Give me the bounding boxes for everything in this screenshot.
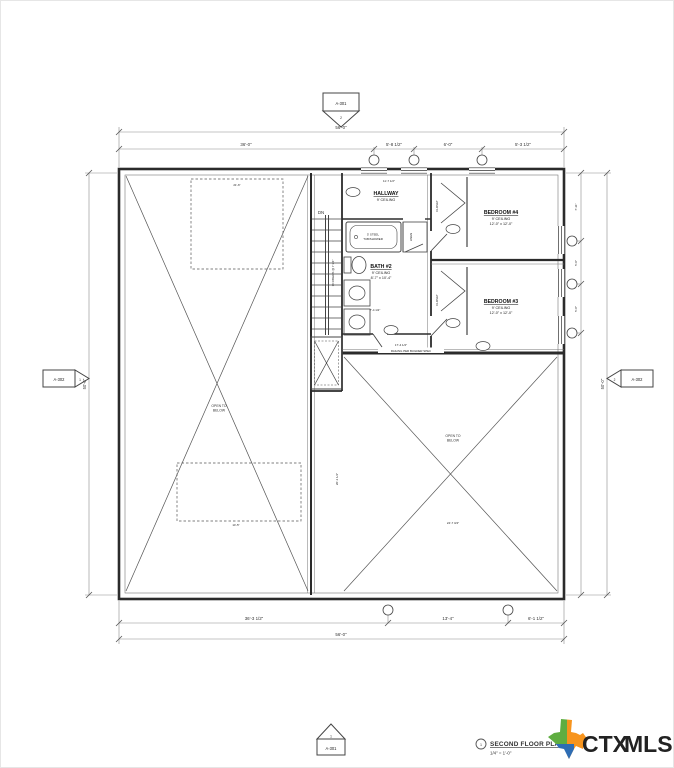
dim-interior: 11'-7 1/2"	[383, 179, 395, 183]
plan-scale: 1/4" = 1'-0"	[490, 751, 512, 756]
room-label-bath2: BATH #2	[370, 264, 391, 270]
room-ceiling-bedroom3: 9' CEILING	[492, 306, 511, 310]
window-tag	[369, 155, 577, 615]
room-size-bedroom3: 12'-0" x 12'-0"	[490, 311, 513, 315]
dim-bottom-seg: 6'-1 1/2"	[528, 616, 545, 621]
dim-interior: 14'-5"	[232, 523, 239, 527]
dashed-feature-below	[177, 463, 301, 521]
ctxmls-logo: CTX MLS	[548, 719, 673, 759]
title-block: 1 SECOND FLOOR PLAN 1/4" = 1'-0"	[476, 739, 564, 756]
dim-top-seg: 5'-8 1/2"	[386, 142, 403, 147]
door-tag	[346, 188, 490, 351]
dim-top-overall: 56'-0"	[335, 125, 347, 130]
marker-left-num: 1	[79, 378, 81, 382]
room-label-bedroom3: BEDROOM #3	[484, 299, 518, 305]
vanity-sink-icon	[344, 280, 370, 306]
marker-bottom-sheet: A-301	[326, 746, 338, 751]
room-label-hallway: HALLWAY	[374, 191, 399, 197]
room-size-bath2: 8'-7" x 10'-4"	[371, 276, 392, 280]
open-below-left: BELOW	[213, 409, 226, 413]
dim-left-overall: 50'-0"	[82, 378, 87, 389]
room-ceiling-hallway: 9' CEILING	[377, 198, 396, 202]
railing-note: RAILING PER BUILDER SPEC	[391, 349, 431, 353]
room-ceiling-bath2: 9' CEILING	[372, 271, 391, 275]
dim-interior: 7'-4 1/2"	[370, 308, 381, 312]
floor-plan-drawing: 56'-0" 36'-0" 5'-8 1/2" 6'-0" 5'-3 1/2" …	[1, 1, 674, 768]
marker-right-num: 2	[614, 378, 616, 382]
vanity-sink-icon	[344, 309, 370, 335]
dim-interior: 21'-6"	[233, 183, 240, 187]
room-tag	[346, 188, 360, 197]
dimension-lines	[85, 127, 611, 644]
dim-interior: 24'-7 3/4"	[447, 521, 459, 525]
dim-right-seg: 5'-0"	[574, 260, 578, 266]
tub-label: TUB/SHOWER	[363, 237, 383, 241]
dim-right-seg: 5'-8"	[574, 306, 578, 312]
dim-right-overall: 50'-0"	[600, 378, 605, 389]
open-below-right: BELOW	[447, 439, 460, 443]
dim-right-seg: 7'-11"	[574, 203, 578, 210]
linen-label: LINEN	[409, 233, 413, 242]
room-size-bedroom4: 12'-0" x 12'-0"	[490, 222, 513, 226]
logo-ctx-text: CTX	[582, 731, 629, 757]
stairs	[311, 215, 342, 389]
marker-top-num: 2	[340, 116, 342, 120]
tub-label: 5' STEEL	[367, 233, 380, 237]
dim-top-seg: 36'-0"	[240, 142, 252, 147]
dim-top-seg: 5'-3 1/2"	[515, 142, 532, 147]
windows	[361, 155, 577, 615]
stairs-dn-label: DN	[318, 210, 324, 215]
detail-number: 1	[480, 743, 482, 747]
room-ceiling-bedroom4: 9' CEILING	[492, 217, 511, 221]
open-below-right: OPEN TO	[445, 434, 460, 438]
tub-drain-icon	[354, 235, 357, 238]
logo-mls-text: MLS	[624, 731, 673, 757]
dim-bottom-overall: 56'-0"	[335, 632, 347, 637]
stairs-risers-label: 16 RISERS @ 7 3/4"	[331, 260, 335, 287]
marker-left-sheet: A-302	[54, 377, 66, 382]
dim-interior: 20'-1 1/2"	[335, 473, 339, 485]
marker-top-sheet: A-301	[336, 101, 348, 106]
marker-right-sheet: A-302	[632, 377, 644, 382]
closet-label: CLOSET	[435, 200, 439, 212]
labels: 56'-0" 36'-0" 5'-8 1/2" 6'-0" 5'-3 1/2" …	[54, 101, 644, 751]
marker-bottom-num: 1	[330, 735, 332, 739]
toilet-icon	[344, 257, 351, 273]
room-label-bedroom4: BEDROOM #4	[484, 210, 518, 216]
plan-title: SECOND FLOOR PLAN	[490, 741, 564, 748]
drawing-sheet: 56'-0" 36'-0" 5'-8 1/2" 6'-0" 5'-3 1/2" …	[0, 0, 674, 768]
dashed-feature-below	[191, 179, 283, 269]
dim-interior: 17'-4 1/2"	[395, 343, 407, 347]
open-below-left: OPEN TO	[211, 404, 226, 408]
dim-bottom-seg: 13'-4"	[442, 616, 454, 621]
dim-top-seg: 6'-0"	[444, 142, 453, 147]
closet-label: CLOSET	[435, 294, 439, 306]
dim-bottom-seg: 36'-3 1/2"	[245, 616, 264, 621]
